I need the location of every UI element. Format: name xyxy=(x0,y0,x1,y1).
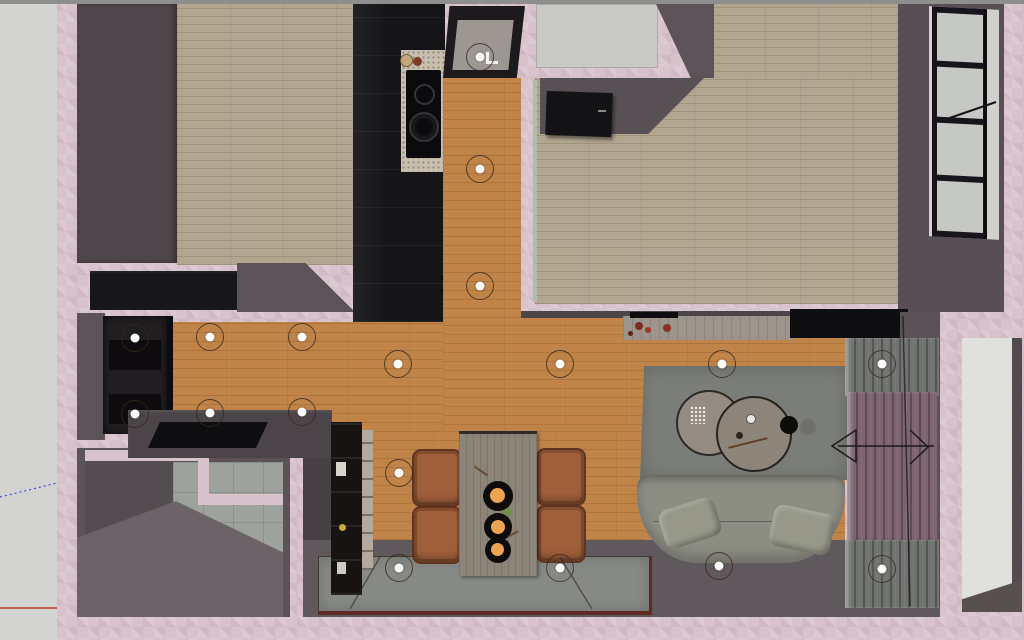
book-item-white xyxy=(336,462,346,476)
window-pane-4 xyxy=(937,181,983,233)
wardrobe-niche-wall xyxy=(77,313,105,440)
candle-decor-1 xyxy=(746,414,756,424)
decor-red-1 xyxy=(635,322,643,330)
door-handle xyxy=(598,110,606,112)
table-twig-decor-1 xyxy=(474,466,488,477)
counter-deck-slab xyxy=(148,422,268,448)
dining-chair-4[interactable] xyxy=(536,505,586,563)
coffee-table-2[interactable] xyxy=(716,396,792,472)
book-item-white2 xyxy=(337,562,346,574)
bookshelf-interior xyxy=(362,430,373,570)
sideboard-notch xyxy=(630,312,678,318)
window-pane-2 xyxy=(937,67,983,119)
floorplan-3d-viewport[interactable] xyxy=(0,0,1024,640)
fruit-3 xyxy=(491,543,504,556)
side-bowl-black xyxy=(780,416,798,434)
sideboard[interactable] xyxy=(623,316,793,340)
white-door-edge xyxy=(1012,338,1022,610)
decor-red-3 xyxy=(663,324,671,332)
dining-chair-3[interactable] xyxy=(536,448,586,506)
decor-red-2 xyxy=(645,327,651,333)
white-door-panel[interactable] xyxy=(962,338,1012,610)
counter-bowl-red xyxy=(413,57,422,66)
sofa-pillow-2 xyxy=(767,503,836,557)
flower-decor xyxy=(690,406,706,424)
book-item-yellow xyxy=(339,524,346,531)
sliding-track-green xyxy=(533,80,537,302)
candle-decor-2 xyxy=(736,432,743,439)
bedroom2-wall-wedge xyxy=(656,4,714,78)
outside-area-left xyxy=(0,4,57,640)
window-pane-3 xyxy=(937,123,983,177)
bedroom1-black-console[interactable] xyxy=(90,271,237,310)
window-pane-1 xyxy=(937,13,983,63)
fruit-2 xyxy=(491,520,505,534)
side-disc-gray xyxy=(800,419,816,435)
tv-panel[interactable] xyxy=(790,309,908,338)
wardrobe-recess-1 xyxy=(109,340,161,370)
kitchen-corridor-floor xyxy=(443,78,521,318)
bedroom2-open-door[interactable] xyxy=(545,91,612,137)
wc-fixture-bracket xyxy=(486,52,498,64)
decor-red-4 xyxy=(628,331,633,336)
wc-floor xyxy=(452,20,513,70)
sofa[interactable] xyxy=(637,475,845,563)
bedroom1-parquet-floor xyxy=(177,4,353,265)
bedroom1-dark-block[interactable] xyxy=(77,4,177,263)
curtain-gray-bottom[interactable] xyxy=(845,540,939,608)
dining-chair-2[interactable] xyxy=(412,506,462,564)
cooktop-burner-large xyxy=(409,112,439,142)
bedroom2-closet-gray[interactable] xyxy=(536,4,658,68)
curtain-mauve[interactable] xyxy=(847,392,937,544)
bathroom-wall-band-mid xyxy=(198,494,283,505)
counter-bowl-tan xyxy=(400,54,413,67)
branch-decor xyxy=(728,437,767,449)
bedroom2-parquet-upper xyxy=(712,4,905,80)
dining-chair-1[interactable] xyxy=(412,449,462,507)
window-mullion-strip xyxy=(984,9,999,240)
bookshelf[interactable] xyxy=(331,422,362,595)
curtain-gray-top[interactable] xyxy=(845,338,939,396)
bedroom1-wall-wedge xyxy=(237,263,355,312)
fruit-1 xyxy=(490,488,505,503)
cooktop-burner-small xyxy=(414,84,435,105)
window-4-pane[interactable] xyxy=(932,6,996,239)
sofa-pillow-1 xyxy=(656,495,724,551)
